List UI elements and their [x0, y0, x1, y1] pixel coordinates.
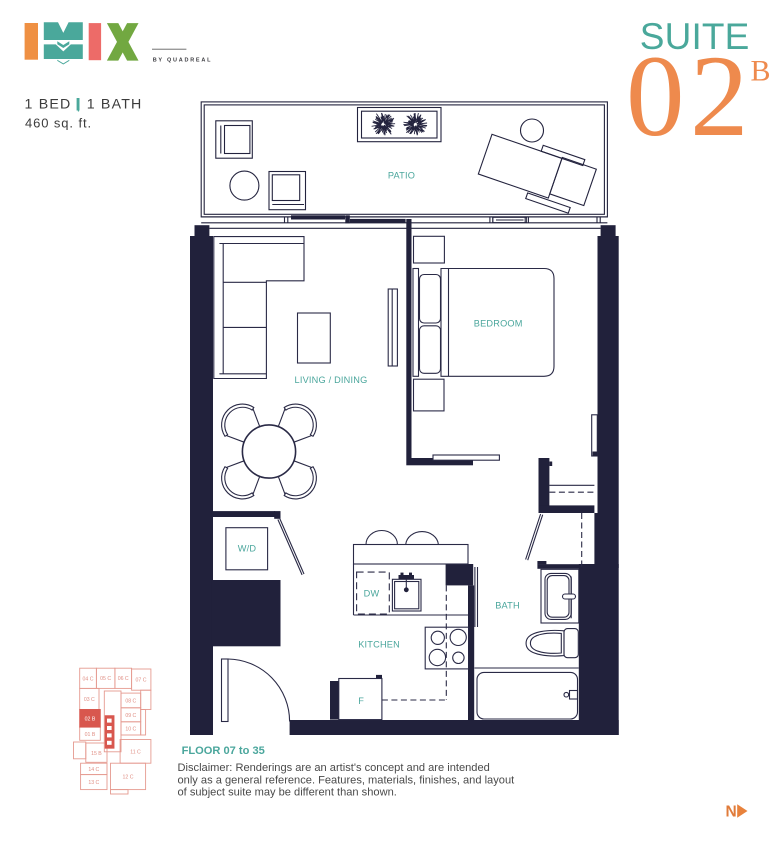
svg-text:KITCHEN: KITCHEN: [358, 640, 400, 650]
svg-text:08 C: 08 C: [125, 699, 136, 705]
svg-text:of subject suite may be differ: of subject suite may be different than s…: [178, 787, 397, 799]
svg-text:1 BED | 1 BATH: 1 BED | 1 BATH: [25, 97, 143, 113]
svg-text:13 C: 13 C: [88, 780, 99, 786]
svg-text:14 C: 14 C: [88, 767, 99, 773]
svg-text:PATIO: PATIO: [388, 171, 415, 181]
svg-text:W/D: W/D: [238, 544, 257, 554]
svg-text:N: N: [726, 804, 737, 821]
svg-text:BY QUADREAL: BY QUADREAL: [153, 58, 213, 64]
svg-text:Disclaimer: Renderings are an: Disclaimer: Renderings are an artist's c…: [178, 762, 490, 774]
svg-text:04 C: 04 C: [83, 677, 94, 683]
svg-text:LIVING / DINING: LIVING / DINING: [295, 375, 368, 385]
svg-text:11 C: 11 C: [130, 750, 141, 756]
svg-text:01 B: 01 B: [85, 732, 96, 738]
svg-text:06 C: 06 C: [118, 676, 129, 682]
svg-text:B: B: [751, 54, 771, 87]
svg-text:03 C: 03 C: [84, 697, 95, 703]
svg-text:F: F: [358, 696, 364, 706]
svg-text:FLOOR 07 to 35: FLOOR 07 to 35: [182, 745, 265, 757]
svg-text:02 B: 02 B: [85, 717, 96, 723]
svg-text:10 C: 10 C: [125, 726, 136, 732]
svg-text:only as a general reference. F: only as a general reference. Features, m…: [178, 774, 515, 786]
svg-text:460 sq. ft.: 460 sq. ft.: [25, 116, 92, 131]
svg-text:09 C: 09 C: [125, 713, 136, 719]
svg-text:15 B: 15 B: [91, 751, 102, 757]
svg-text:DW: DW: [364, 589, 380, 599]
svg-text:12 C: 12 C: [123, 775, 134, 781]
svg-text:05 C: 05 C: [100, 676, 111, 682]
svg-text:02: 02: [626, 32, 754, 161]
svg-text:BATH: BATH: [495, 601, 520, 611]
svg-text:07 C: 07 C: [136, 678, 147, 684]
svg-text:BEDROOM: BEDROOM: [474, 319, 523, 329]
